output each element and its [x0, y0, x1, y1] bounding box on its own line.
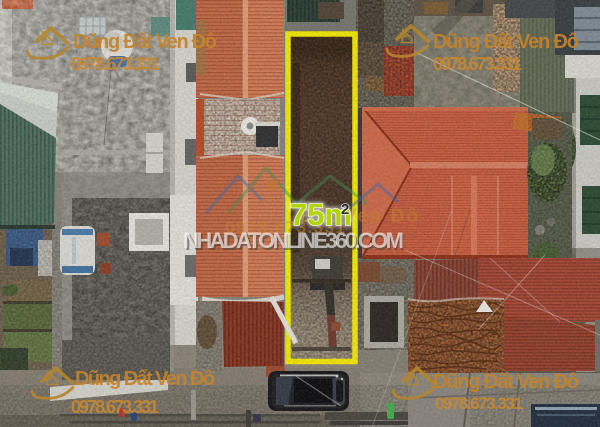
svg-text:2: 2 [341, 201, 349, 218]
svg-text:0978.673.331: 0978.673.331 [71, 397, 159, 417]
svg-text:0978.673.331: 0978.673.331 [71, 54, 160, 74]
svg-text:0978.673.331: 0978.673.331 [433, 54, 522, 74]
svg-text:Dũng Đất Ven Đô: Dũng Đất Ven Đô [433, 371, 579, 393]
svg-text:0978.673.331: 0978.673.331 [435, 394, 523, 413]
svg-text:Dũng Đất Ven Đô: Dũng Đất Ven Đô [433, 31, 579, 53]
svg-text:Dũng Đất Ven Đô: Dũng Đất Ven Đô [73, 31, 217, 53]
svg-text:Dũng Đất Ven Đô: Dũng Đất Ven Đô [75, 368, 215, 390]
svg-text:NHADATONLINE360.COM: NHADATONLINE360.COM [183, 228, 404, 253]
